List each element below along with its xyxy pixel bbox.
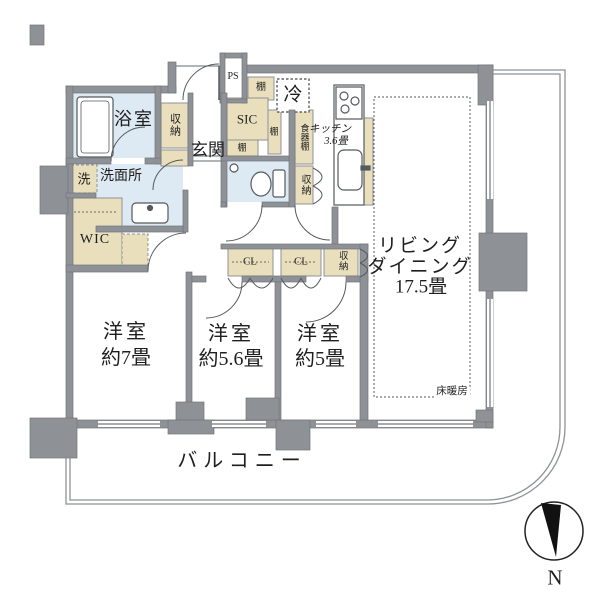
bathtub-inner [81,101,109,153]
pillar [476,410,493,422]
neighbor-wall-stub [30,25,44,45]
vanity-faucet [148,206,153,211]
label-bedroom2-size: 約5.6畳 [199,349,264,369]
kitchen-counter-strip [364,118,373,205]
label-balcony: バルコニー [177,451,307,471]
pillar-top-right [478,65,493,105]
wall [155,86,161,164]
label-living-line1: リビング [378,237,462,256]
label-bedroom1-size: 約7畳 [101,348,151,368]
entrance-storage-lower-box [161,150,188,166]
label-cupboard: 食器棚 [300,124,309,151]
pillar [168,420,214,434]
label-shelf-top: 棚 [256,83,266,93]
hall-storage-folding-door [313,168,322,204]
stove-burner [351,97,359,105]
label-shelf-side: 棚 [269,128,278,137]
compass [525,502,583,560]
stove-burner [340,92,348,100]
label-living-storage: 収納 [336,251,346,272]
wall [168,62,176,93]
label-compass-north: N [547,568,562,589]
label-pipe-space: PS [227,72,238,82]
label-bedroom2: 洋室 [208,324,254,344]
label-hall-storage: 収納 [299,174,309,196]
stove-burner [341,105,349,113]
toilet-hand-sink [230,164,238,172]
wall [262,202,289,207]
label-shoe-closet: SIC [237,113,257,126]
pillar [246,398,279,420]
wall [289,110,295,207]
wall-bump [40,166,68,214]
bedroom1-door-arc [148,233,186,271]
label-wic: WIC [80,233,110,247]
wic-annex-box [122,234,148,268]
label-living-size: 17.5畳 [395,278,447,297]
wall [66,158,111,164]
kitchen-sink [338,150,362,190]
ps-wall [242,53,247,103]
floor-plan: 浴室 洗面所 洗 WIC 玄関 PS SIC 冷 キッチン 3.6畳 リビング … [0,0,600,600]
label-refrigerator: 冷 [283,86,302,105]
label-bathroom: 浴室 [114,110,154,128]
label-kitchen: キッチン [309,125,351,136]
label-bedroom3-size: 約5畳 [295,349,345,369]
pillar [176,402,204,420]
label-shelf-bottom: 棚 [237,144,246,153]
toilet-door-arc [226,205,262,241]
kitchen-faucet [361,166,370,170]
label-bedroom1: 洋室 [103,322,149,342]
label-entrance-storage: 収納 [169,113,180,137]
pillar [276,420,310,450]
pillar-mid-right [479,233,527,291]
label-closet1: CL [243,257,257,268]
wall-hall-south [221,244,368,249]
wall [66,86,73,428]
label-washroom: 洗面所 [100,170,142,184]
label-kitchen-size: 3.6畳 [324,137,348,148]
label-washing-machine: 洗 [77,173,90,186]
living-door-arc [295,205,330,240]
label-entrance: 玄関 [191,142,225,159]
wall [66,265,148,272]
wall [221,156,295,161]
wall [332,207,338,244]
wall [183,190,188,232]
wall [192,276,206,282]
wall-bed1-bed2 [186,272,192,420]
wall [66,193,96,198]
pillar-bottom-left [30,418,77,458]
toilet-tank [273,170,285,197]
wall [221,202,226,207]
wall [145,158,161,164]
label-living-line2: ダイニング [367,258,472,277]
label-closet2: CL [294,257,308,268]
label-bedroom3: 洋室 [297,324,343,344]
wall-north [247,65,493,73]
label-floor-heating: 床暖房 [434,387,470,398]
toilet-bowl [251,172,271,196]
